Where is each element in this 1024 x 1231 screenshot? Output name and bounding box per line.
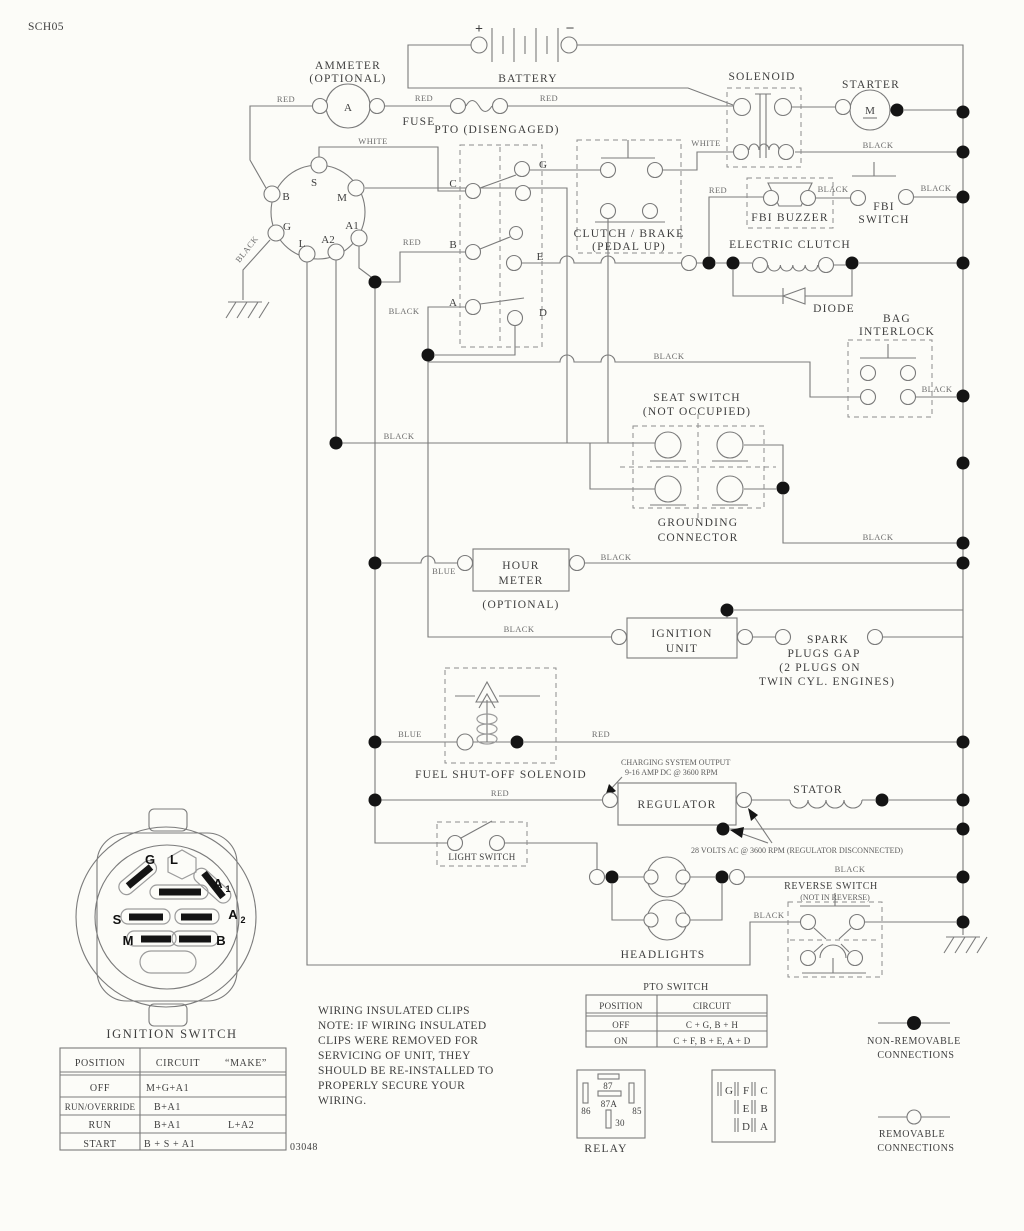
- wiring-diagram: G L A 1 A 2 S M B IGNITION SWITCH POSITI…: [0, 0, 1024, 1231]
- plug-g: G: [283, 221, 291, 233]
- svg-text:WIRING INSULATED CLIPS: WIRING INSULATED CLIPS: [318, 1005, 470, 1017]
- reverse-switch-label: REVERSE SWITCH: [784, 881, 878, 892]
- svg-text:RED: RED: [709, 185, 727, 195]
- plug-a1: A1: [345, 220, 358, 232]
- diode-symbol: [783, 288, 805, 304]
- clutch-brake-label: CLUTCH / BRAKE: [574, 228, 685, 240]
- svg-text:B+A1: B+A1: [154, 1120, 181, 1131]
- legend-removable: REMOVABLE: [879, 1129, 945, 1140]
- plug-a2: A2: [321, 234, 334, 246]
- pto-pin-d: D: [539, 307, 547, 319]
- svg-text:PROPERLY SECURE YOUR: PROPERLY SECURE YOUR: [318, 1080, 465, 1092]
- relay-pin-87a: 87A: [601, 1099, 618, 1109]
- drawing-number: 03048: [290, 1142, 318, 1153]
- ammeter-label: AMMETER: [315, 60, 381, 72]
- battery-label: BATTERY: [498, 73, 558, 85]
- pin-e: E: [743, 1103, 750, 1115]
- wiring-note: WIRING INSULATED CLIPS NOTE: IF WIRING I…: [318, 1005, 494, 1107]
- pto-pin-a: A: [449, 297, 457, 309]
- relay-pin-85: 85: [632, 1106, 642, 1116]
- pto-pin-e: E: [537, 251, 544, 263]
- regulator-label: REGULATOR: [638, 799, 717, 811]
- pto-table-title: PTO SWITCH: [643, 982, 709, 993]
- connections-legend: NON-REMOVABLE CONNECTIONS REMOVABLE CONN…: [867, 1016, 961, 1154]
- electric-clutch-label: ELECTRIC CLUTCH: [729, 239, 851, 251]
- fuel-solenoid-label: FUEL SHUT-OFF SOLENOID: [415, 769, 587, 781]
- key-terminal-g: G: [145, 852, 155, 867]
- svg-text:CONNECTOR: CONNECTOR: [658, 532, 739, 544]
- fuse-symbol: [466, 101, 492, 112]
- headlights-label: HEADLIGHTS: [621, 949, 706, 961]
- plug-s: S: [311, 177, 317, 189]
- svg-text:BLACK: BLACK: [863, 140, 894, 150]
- svg-text:C + F, B + E, A + D: C + F, B + E, A + D: [673, 1036, 750, 1046]
- charging-note: CHARGING SYSTEM OUTPUT: [621, 758, 730, 767]
- svg-text:UNIT: UNIT: [666, 643, 698, 655]
- connector-pin-legend: G F C E B D A: [712, 1070, 775, 1142]
- svg-text:BLACK: BLACK: [754, 910, 785, 920]
- relay-drawing: 87 87A 86 85 30 RELAY: [577, 1070, 645, 1155]
- svg-text:RED: RED: [592, 729, 610, 739]
- svg-text:WIRING.: WIRING.: [318, 1095, 366, 1107]
- ignition-unit-label: IGNITION: [651, 628, 712, 640]
- ground-symbol-left: [226, 302, 269, 318]
- ammeter-a: A: [344, 102, 352, 114]
- col-header-circuit: CIRCUIT: [156, 1058, 200, 1069]
- svg-text:BLACK: BLACK: [233, 234, 260, 265]
- svg-text:B + S + A1: B + S + A1: [144, 1139, 195, 1150]
- pto-switch-table: PTO SWITCH POSITION CIRCUIT OFF C + G, B…: [586, 982, 767, 1047]
- terminals: [264, 37, 916, 966]
- svg-text:(OPTIONAL): (OPTIONAL): [482, 599, 559, 611]
- svg-text:CONNECTIONS: CONNECTIONS: [877, 1050, 954, 1061]
- diode-label: DIODE: [813, 303, 855, 315]
- fbi-buzzer-label: FBI BUZZER: [751, 212, 829, 224]
- svg-text:BLACK: BLACK: [601, 552, 632, 562]
- pin-d: D: [742, 1121, 750, 1133]
- pin-c: C: [760, 1085, 767, 1097]
- table-row: RUN/OVERRIDE: [65, 1102, 136, 1112]
- bag-interlock-label: BAG: [883, 313, 911, 325]
- battery-plus: +: [475, 22, 483, 37]
- stator-label: STATOR: [793, 784, 843, 796]
- battery-minus: –: [566, 20, 575, 35]
- plug-l: L: [299, 238, 306, 250]
- key-terminal-b: B: [216, 933, 225, 948]
- legend-non-removable: NON-REMOVABLE: [867, 1036, 961, 1047]
- svg-text:BLACK: BLACK: [863, 532, 894, 542]
- pin-g: G: [725, 1085, 733, 1097]
- table-row: OFF: [90, 1083, 110, 1094]
- starter-m: M: [865, 105, 875, 117]
- key-terminal-a2: A: [228, 907, 238, 922]
- svg-text:BLACK: BLACK: [504, 624, 535, 634]
- svg-text:L+A2: L+A2: [228, 1120, 254, 1131]
- svg-text:(PEDAL UP): (PEDAL UP): [592, 241, 666, 253]
- svg-text:SERVICING OF UNIT, THEY: SERVICING OF UNIT, THEY: [318, 1050, 471, 1062]
- svg-text:RED: RED: [415, 93, 433, 103]
- schematic-code: SCH05: [28, 21, 64, 33]
- svg-text:(OPTIONAL): (OPTIONAL): [309, 73, 386, 85]
- solenoid-label: SOLENOID: [728, 71, 795, 83]
- pin-a: A: [760, 1121, 768, 1133]
- table-row: OFF: [612, 1020, 629, 1030]
- svg-text:CONNECTIONS: CONNECTIONS: [877, 1143, 954, 1154]
- svg-text:(NOT OCCUPIED): (NOT OCCUPIED): [643, 406, 751, 418]
- svg-text:(NOT IN REVERSE): (NOT IN REVERSE): [800, 893, 870, 902]
- spark-plugs-label: SPARK: [807, 634, 849, 646]
- svg-text:WHITE: WHITE: [358, 136, 387, 146]
- pto-pin-b: B: [449, 239, 456, 251]
- svg-text:CIRCUIT: CIRCUIT: [693, 1001, 731, 1011]
- svg-text:PLUGS GAP: PLUGS GAP: [787, 648, 860, 660]
- svg-text:INTERLOCK: INTERLOCK: [859, 326, 935, 338]
- svg-text:9-16 AMP DC @ 3600 RPM: 9-16 AMP DC @ 3600 RPM: [625, 768, 718, 777]
- plug-m: M: [337, 192, 347, 204]
- svg-text:BLUE: BLUE: [398, 729, 422, 739]
- bag-interlock-box: [848, 340, 932, 417]
- svg-text:WHITE: WHITE: [691, 138, 720, 148]
- relay-pin-30: 30: [615, 1118, 625, 1128]
- volts-note: 28 VOLTS AC @ 3600 RPM (REGULATOR DISCON…: [691, 846, 903, 855]
- ignition-switch-drawing: G L A 1 A 2 S M B IGNITION SWITCH: [76, 809, 256, 1041]
- col-header-make: “MAKE”: [225, 1058, 267, 1069]
- key-terminal-s: S: [113, 912, 122, 927]
- pin-b: B: [760, 1103, 767, 1115]
- svg-text:BLACK: BLACK: [654, 351, 685, 361]
- svg-text:NOTE: IF WIRING INSULATED: NOTE: IF WIRING INSULATED: [318, 1020, 487, 1032]
- key-terminal-m: M: [123, 933, 134, 948]
- ignition-switch-table: POSITION CIRCUIT “MAKE” OFF M+G+A1 RUN/O…: [60, 1048, 286, 1150]
- fuse-label: FUSE: [403, 116, 436, 128]
- svg-text:BLUE: BLUE: [432, 566, 456, 576]
- svg-text:RED: RED: [277, 94, 295, 104]
- svg-text:(2 PLUGS ON: (2 PLUGS ON: [779, 662, 861, 674]
- grounding-connector-label: GROUNDING: [658, 517, 738, 529]
- starter-label: STARTER: [842, 79, 900, 91]
- ground-symbol-right: [944, 937, 987, 953]
- svg-text:BLACK: BLACK: [818, 184, 849, 194]
- relay-pin-86: 86: [581, 1106, 591, 1116]
- svg-text:B+A1: B+A1: [154, 1102, 181, 1113]
- table-row: ON: [614, 1036, 628, 1046]
- pto-pin-g: G: [539, 159, 547, 171]
- schematic-sheet: G L A 1 A 2 S M B IGNITION SWITCH POSITI…: [0, 0, 1024, 1231]
- svg-text:POSITION: POSITION: [599, 1001, 643, 1011]
- light-switch-label: LIGHT SWITCH: [448, 852, 515, 862]
- svg-text:BLACK: BLACK: [384, 431, 415, 441]
- battery-symbol: [492, 28, 558, 62]
- svg-text:BLACK: BLACK: [389, 306, 420, 316]
- diagram-labels: SCH05 AMMETER (OPTIONAL) A + – BATTERY R…: [28, 20, 953, 961]
- bag-interlock-actuator: [860, 344, 916, 358]
- pto-label: PTO (DISENGAGED): [434, 124, 559, 136]
- table-row: START: [83, 1139, 116, 1150]
- svg-text:SHOULD BE RE-INSTALLED TO: SHOULD BE RE-INSTALLED TO: [318, 1065, 494, 1077]
- relay-label: RELAY: [584, 1143, 627, 1155]
- svg-text:C + G, B + H: C + G, B + H: [686, 1020, 738, 1030]
- svg-text:TWIN CYL. ENGINES): TWIN CYL. ENGINES): [759, 676, 895, 688]
- key-terminal-l: L: [170, 852, 178, 867]
- svg-text:SWITCH: SWITCH: [858, 214, 909, 226]
- seat-switch-label: SEAT SWITCH: [653, 392, 740, 404]
- svg-text:CLIPS WERE REMOVED FOR: CLIPS WERE REMOVED FOR: [318, 1035, 478, 1047]
- pto-pin-c: C: [449, 178, 456, 190]
- table-row: RUN: [89, 1120, 112, 1131]
- svg-text:METER: METER: [499, 575, 544, 587]
- svg-text:BLACK: BLACK: [921, 183, 952, 193]
- ignition-switch-title: IGNITION SWITCH: [106, 1027, 237, 1041]
- relay-pin-87: 87: [603, 1081, 613, 1091]
- key-terminal-a1: A: [213, 876, 223, 891]
- svg-text:2: 2: [240, 915, 245, 925]
- svg-text:BLACK: BLACK: [922, 384, 953, 394]
- svg-text:RED: RED: [403, 237, 421, 247]
- plug-b: B: [282, 191, 289, 203]
- svg-text:RED: RED: [540, 93, 558, 103]
- hour-meter-label: HOUR: [502, 560, 539, 572]
- pin-f: F: [743, 1085, 749, 1097]
- svg-text:1: 1: [225, 884, 230, 894]
- col-header-position: POSITION: [75, 1058, 125, 1069]
- svg-text:RED: RED: [491, 788, 509, 798]
- solenoid-symbol: [749, 94, 779, 158]
- svg-text:M+G+A1: M+G+A1: [146, 1083, 189, 1094]
- fbi-switch-label: FBI: [873, 201, 895, 213]
- ignition-switch-plug: [271, 165, 365, 259]
- svg-text:BLACK: BLACK: [835, 864, 866, 874]
